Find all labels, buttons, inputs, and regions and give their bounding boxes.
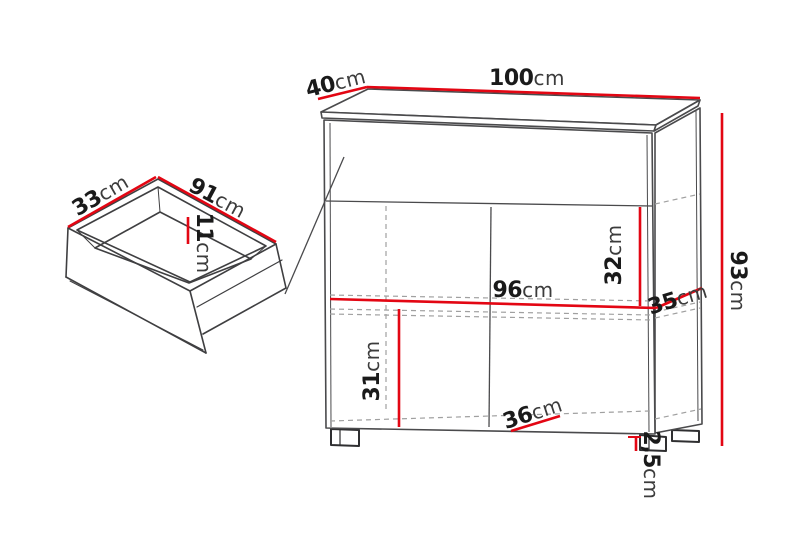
- side-panel-face: [655, 108, 702, 433]
- dimension-label-foot-height: 2,5cm: [639, 431, 661, 500]
- dimension-label-inner-width: 96cm: [492, 280, 553, 302]
- dimension-value: 96: [492, 278, 522, 303]
- dimension-unit: cm: [726, 280, 750, 311]
- dimension-label-upper-section-height: 32cm: [604, 224, 626, 285]
- dimension-unit: cm: [192, 242, 216, 273]
- foot-back-right: [672, 430, 699, 442]
- dimension-value: 2,5: [638, 431, 663, 468]
- dimension-unit: cm: [522, 278, 553, 302]
- dimension-value: 31: [360, 372, 385, 402]
- cabinet-side-panel: [655, 108, 702, 433]
- dimension-unit: cm: [602, 224, 626, 255]
- dimension-label-top-width: 100cm: [489, 68, 565, 90]
- dimension-unit: cm: [533, 66, 564, 90]
- dimension-value: 100: [489, 66, 533, 91]
- dimension-unit: cm: [639, 468, 663, 499]
- dimension-value: 11: [191, 212, 216, 242]
- dimension-label-total-height: 93cm: [726, 250, 748, 311]
- furniture-dimension-diagram: 40cm 100cm 33cm 91cm 11cm 32cm 96cm 35cm…: [0, 0, 800, 533]
- dimension-value: 32: [602, 256, 627, 286]
- dimension-unit: cm: [360, 340, 384, 371]
- dimension-label-lower-section-height: 31cm: [362, 340, 384, 401]
- dimension-value: 93: [725, 250, 750, 280]
- dimension-label-drawer-inner-height: 11cm: [192, 212, 214, 273]
- diagram-linework: [0, 0, 800, 533]
- foot-front-left: [331, 429, 359, 446]
